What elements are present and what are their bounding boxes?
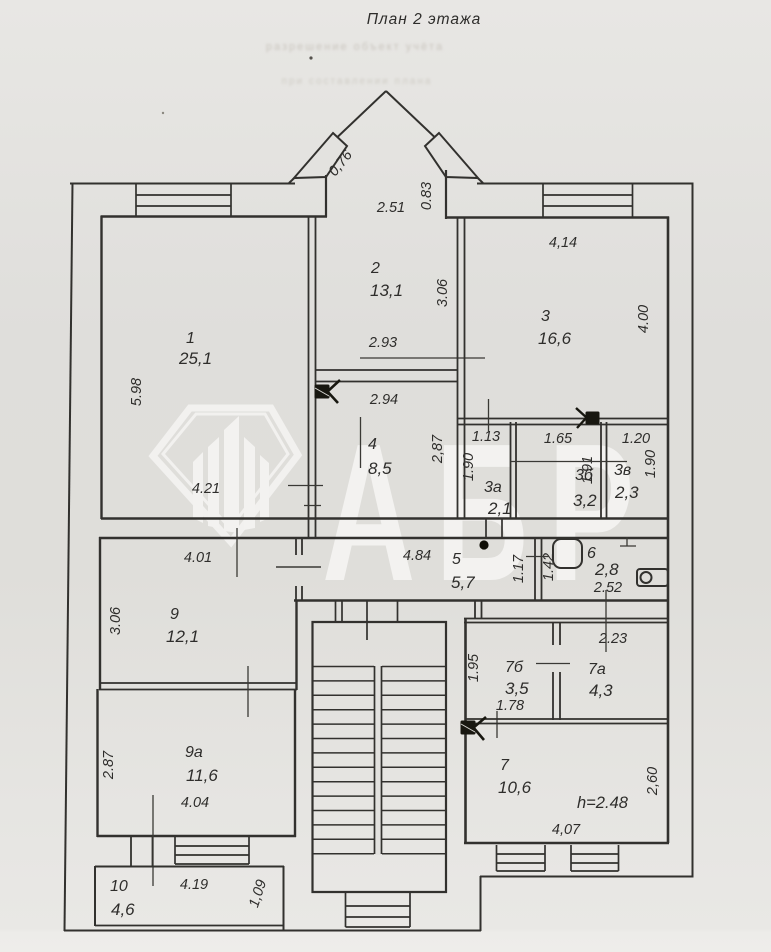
svg-text:1.90: 1.90 bbox=[643, 450, 659, 478]
svg-text:2,1: 2,1 bbox=[487, 499, 512, 518]
svg-text:2.87: 2.87 bbox=[101, 750, 117, 780]
svg-text:7а: 7а bbox=[588, 661, 606, 678]
svg-text:4.01: 4.01 bbox=[184, 550, 212, 566]
svg-text:2.94: 2.94 bbox=[369, 392, 398, 408]
svg-text:1.91: 1.91 bbox=[580, 456, 596, 484]
svg-text:4,3: 4,3 bbox=[589, 681, 613, 700]
svg-text:13,1: 13,1 bbox=[370, 281, 403, 300]
svg-text:2.93: 2.93 bbox=[368, 335, 397, 351]
svg-text:3,5: 3,5 bbox=[505, 679, 529, 698]
svg-text:План 2 этажа: План 2 этажа bbox=[367, 11, 482, 28]
svg-text:1.95: 1.95 bbox=[466, 653, 482, 682]
svg-text:4.00: 4.00 bbox=[636, 305, 652, 333]
svg-text:4.21: 4.21 bbox=[192, 481, 220, 497]
svg-text:1.13: 1.13 bbox=[472, 429, 500, 445]
svg-text:3,2: 3,2 bbox=[573, 491, 597, 510]
svg-text:5.98: 5.98 bbox=[129, 378, 145, 406]
svg-text:1: 1 bbox=[186, 330, 195, 347]
svg-text:0.83: 0.83 bbox=[419, 182, 435, 210]
svg-text:9а: 9а bbox=[185, 744, 203, 761]
svg-text:2,60: 2,60 bbox=[645, 767, 661, 796]
svg-text:2,8: 2,8 bbox=[594, 560, 619, 579]
svg-text:разрешение объект учёта: разрешение объект учёта bbox=[266, 41, 444, 53]
svg-text:1.17: 1.17 bbox=[511, 554, 527, 583]
svg-text:2.52: 2.52 bbox=[593, 580, 622, 596]
svg-text:1.78: 1.78 bbox=[496, 698, 524, 714]
svg-text:4,07: 4,07 bbox=[552, 822, 581, 838]
svg-text:5,7: 5,7 bbox=[451, 573, 475, 592]
svg-text:10: 10 bbox=[110, 878, 128, 895]
svg-text:16,6: 16,6 bbox=[538, 329, 572, 348]
svg-text:3а: 3а bbox=[484, 479, 502, 496]
svg-text:2,87: 2,87 bbox=[430, 434, 446, 464]
svg-text:5: 5 bbox=[452, 551, 461, 568]
svg-text:h=2.48: h=2.48 bbox=[577, 794, 629, 812]
svg-text:3.06: 3.06 bbox=[435, 278, 451, 307]
svg-text:25,1: 25,1 bbox=[178, 349, 212, 368]
svg-text:3: 3 bbox=[541, 308, 550, 325]
svg-text:7: 7 bbox=[500, 757, 510, 774]
svg-text:10,6: 10,6 bbox=[498, 778, 532, 797]
svg-text:3.06: 3.06 bbox=[108, 606, 124, 635]
svg-text:4.04: 4.04 bbox=[181, 795, 209, 811]
svg-text:4,6: 4,6 bbox=[111, 900, 135, 919]
svg-text:1.90: 1.90 bbox=[461, 453, 477, 481]
svg-text:12,1: 12,1 bbox=[166, 627, 199, 646]
svg-text:4.19: 4.19 bbox=[180, 877, 208, 893]
svg-text:4.84: 4.84 bbox=[403, 548, 431, 564]
svg-text:8,5: 8,5 bbox=[368, 459, 392, 478]
svg-text:4,14: 4,14 bbox=[549, 235, 577, 251]
svg-text:2,3: 2,3 bbox=[614, 483, 639, 502]
svg-text:1.20: 1.20 bbox=[622, 431, 650, 447]
svg-text:при составлении плана: при составлении плана bbox=[282, 76, 433, 87]
svg-text:2: 2 bbox=[370, 260, 380, 277]
svg-text:1.65: 1.65 bbox=[544, 431, 573, 447]
svg-text:2.51: 2.51 bbox=[376, 200, 405, 216]
svg-text:11,6: 11,6 bbox=[186, 766, 218, 785]
svg-text:2.23: 2.23 bbox=[598, 631, 627, 647]
svg-text:9: 9 bbox=[170, 606, 179, 623]
svg-text:3в: 3в bbox=[614, 462, 631, 479]
svg-text:4: 4 bbox=[368, 436, 377, 453]
svg-text:7б: 7б bbox=[505, 659, 524, 676]
